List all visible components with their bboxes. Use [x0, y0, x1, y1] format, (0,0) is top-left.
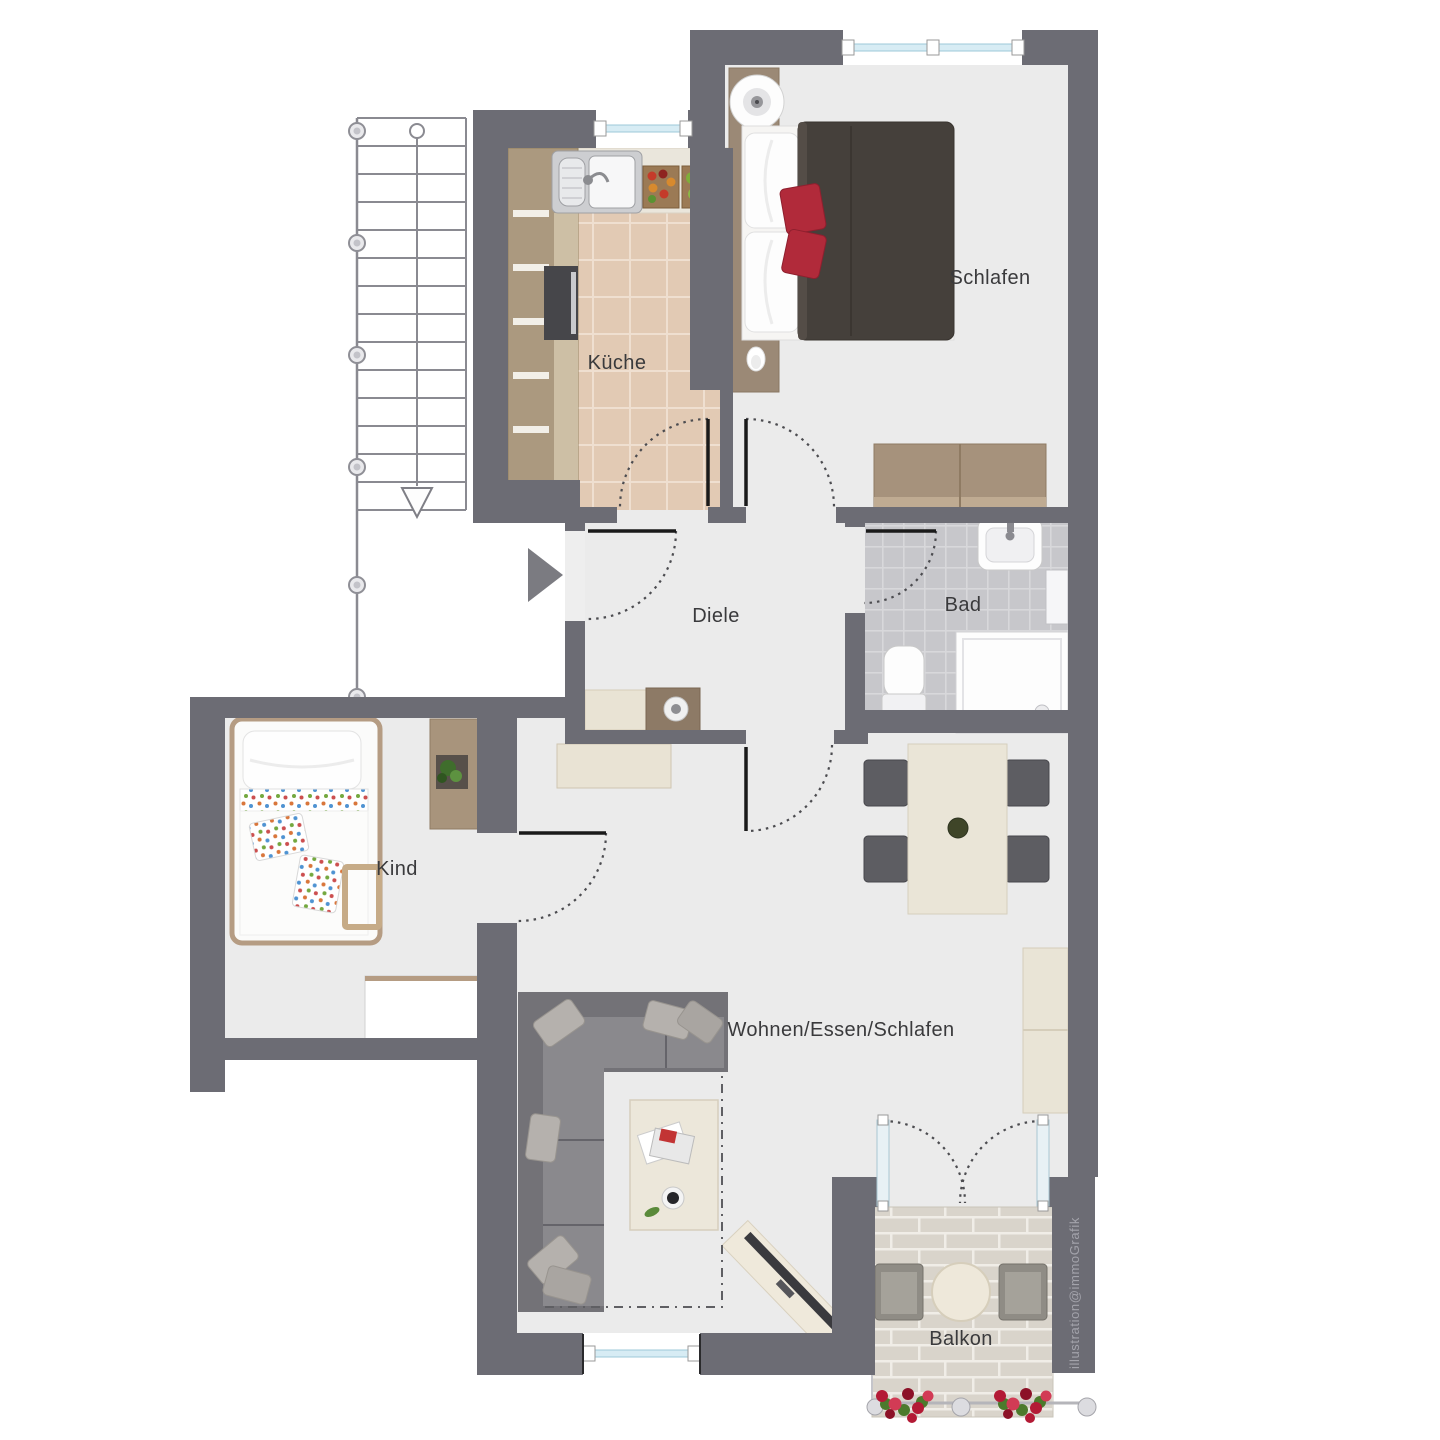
bedroom-wardrobe [874, 444, 1046, 508]
flower-box [994, 1388, 1052, 1423]
living-window [583, 1333, 700, 1375]
red-pillow [779, 183, 826, 235]
child-desk [430, 719, 480, 829]
room-label-diele: Diele [692, 605, 740, 627]
room-label-schlafen: Schlafen [949, 267, 1030, 289]
double-bed [742, 122, 954, 340]
kitchen-window [594, 110, 692, 148]
room-label-balkon: Balkon [929, 1328, 993, 1350]
entrance-arrow [528, 548, 563, 602]
room-label-bad: Bad [945, 594, 982, 616]
floor-plan: illustration@immoGrafik [0, 0, 1440, 1440]
slippers [747, 347, 765, 371]
room-label-wohnen: Wohnen/Essen/Schlafen [727, 1019, 954, 1041]
decor-bowl [664, 697, 688, 721]
toilet [882, 646, 926, 714]
floor-plan-page: illustration@immoGrafik [0, 0, 1440, 1440]
bedside-lamp [730, 75, 784, 129]
balcony-table [932, 1263, 990, 1321]
room-label-kueche: Küche [588, 352, 647, 374]
kitchen-sink [552, 151, 642, 213]
child-bed [232, 719, 380, 943]
coffee-table [630, 1100, 718, 1230]
dining-chair [1005, 760, 1049, 806]
table-bowl [948, 818, 968, 838]
dresser [557, 744, 671, 788]
dining-chair [864, 836, 908, 882]
child-wardrobe [365, 976, 481, 1040]
watermark: illustration@immoGrafik [1067, 1217, 1082, 1369]
bedroom-window [842, 30, 1024, 65]
bath-sink [978, 518, 1042, 570]
oven [544, 266, 578, 340]
flower-box [876, 1388, 934, 1423]
bath-cabinet [1046, 570, 1068, 624]
staircase [357, 118, 466, 697]
room-label-kind: Kind [376, 858, 418, 880]
hall-sideboard [585, 690, 646, 730]
duvet [798, 122, 954, 340]
dining-chair [864, 760, 908, 806]
wall-sideboard [1023, 948, 1068, 1113]
dining-chair [1005, 836, 1049, 882]
